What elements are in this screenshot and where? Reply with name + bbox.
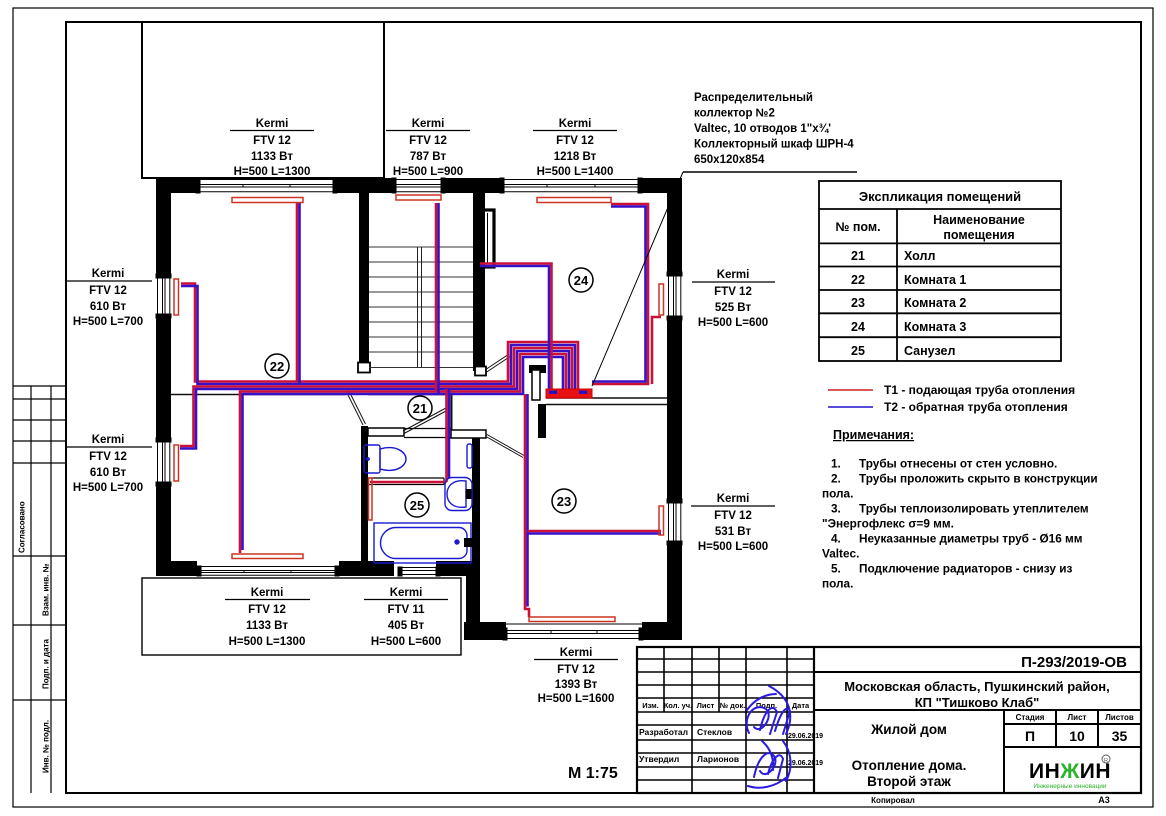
svg-text:610 Вт: 610 Вт	[90, 467, 127, 479]
svg-text:Изм.: Изм.	[642, 701, 659, 710]
svg-text:Санузел: Санузел	[904, 344, 955, 358]
svg-text:FTV 12: FTV 12	[714, 286, 752, 298]
svg-text:Кол. уч.: Кол. уч.	[664, 701, 693, 710]
svg-text:Kermi: Kermi	[256, 118, 289, 130]
svg-text:Примечания:: Примечания:	[833, 428, 914, 442]
svg-text:25: 25	[851, 344, 865, 358]
svg-text:Неуказанные диаметры труб - Ø1: Неуказанные диаметры труб - Ø16 мм	[859, 532, 1082, 546]
svg-text:Комната 3: Комната 3	[904, 320, 966, 334]
svg-text:22: 22	[851, 273, 865, 287]
svg-text:Valtec.: Valtec.	[822, 547, 859, 561]
svg-text:Коллекторный шкаф ШРН-4: Коллекторный шкаф ШРН-4	[694, 139, 854, 151]
svg-text:10: 10	[1069, 728, 1085, 744]
svg-text:Kermi: Kermi	[251, 587, 284, 599]
svg-text:H=500 L=1400: H=500 L=1400	[537, 166, 614, 178]
svg-text:23: 23	[851, 296, 865, 310]
svg-text:ИНЖИН: ИНЖИН	[1029, 760, 1111, 783]
svg-text:4.: 4.	[831, 532, 841, 546]
svg-text:коллектор №2: коллектор №2	[694, 108, 775, 120]
svg-text:2.: 2.	[831, 472, 841, 486]
svg-text:Дата: Дата	[792, 701, 810, 710]
svg-text:Kermi: Kermi	[560, 647, 593, 659]
svg-text:Экспликация помещений: Экспликация помещений	[859, 189, 1021, 204]
svg-text:Kermi: Kermi	[390, 587, 423, 599]
svg-text:24: 24	[851, 320, 865, 334]
svg-text:29.06.2019: 29.06.2019	[788, 733, 823, 740]
svg-text:Kermi: Kermi	[92, 268, 125, 280]
svg-text:29.06.2019: 29.06.2019	[788, 760, 823, 767]
svg-text:Копировал: Копировал	[871, 796, 915, 805]
svg-text:H=500 L=1300: H=500 L=1300	[229, 636, 306, 648]
svg-text:Valtec, 10 отводов 1"х¾': Valtec, 10 отводов 1"х¾'	[694, 123, 831, 135]
svg-text:25: 25	[410, 498, 424, 513]
svg-text:Т2 - обратная труба отопления: Т2 - обратная труба отопления	[884, 400, 1068, 414]
svg-text:FTV 12: FTV 12	[714, 510, 752, 522]
svg-text:Комната 1: Комната 1	[904, 273, 966, 287]
svg-text:М 1:75: М 1:75	[568, 765, 618, 782]
svg-text:Утвердил: Утвердил	[639, 754, 679, 764]
svg-text:Kermi: Kermi	[92, 434, 125, 446]
svg-text:FTV 12: FTV 12	[409, 135, 447, 147]
svg-text:H=500 L=600: H=500 L=600	[698, 541, 768, 553]
svg-text:Взам. инв. №: Взам. инв. №	[42, 563, 51, 616]
svg-text:H=500 L=1600: H=500 L=1600	[538, 693, 615, 705]
svg-text:П-293/2019-ОВ: П-293/2019-ОВ	[1021, 654, 1127, 671]
svg-text:Стадия: Стадия	[1016, 713, 1045, 722]
svg-text:Лист: Лист	[697, 701, 715, 710]
svg-text:Ларионов: Ларионов	[697, 754, 739, 764]
svg-text:"Энергофлекс σ=9 мм.: "Энергофлекс σ=9 мм.	[822, 517, 954, 531]
svg-text:FTV 12: FTV 12	[89, 285, 127, 297]
svg-text:1218 Вт: 1218 Вт	[554, 151, 597, 163]
svg-text:H=500 L=600: H=500 L=600	[371, 636, 441, 648]
svg-text:FTV 11: FTV 11	[387, 604, 425, 616]
svg-text:405 Вт: 405 Вт	[388, 620, 425, 632]
svg-text:А3: А3	[1098, 795, 1110, 805]
svg-text:FTV 12: FTV 12	[556, 135, 594, 147]
svg-text:Трубы отнесены от стен условно: Трубы отнесены от стен условно.	[859, 457, 1057, 471]
svg-text:1133 Вт: 1133 Вт	[251, 151, 293, 163]
svg-text:Отопление дома.: Отопление дома.	[852, 758, 967, 773]
svg-text:FTV 12: FTV 12	[253, 135, 291, 147]
svg-text:Инв. № подл.: Инв. № подл.	[42, 720, 51, 773]
svg-text:Трубы теплоизолировать утеплит: Трубы теплоизолировать утеплителем	[859, 502, 1089, 516]
svg-text:1393 Вт: 1393 Вт	[555, 679, 598, 691]
svg-text:3.: 3.	[831, 502, 841, 516]
svg-text:Подключение радиаторов - снизу: Подключение радиаторов - снизу из	[859, 562, 1072, 576]
svg-text:610 Вт: 610 Вт	[90, 301, 127, 313]
svg-text:1.: 1.	[831, 457, 841, 471]
svg-text:Комната 2: Комната 2	[904, 296, 966, 310]
svg-text:Согласовано: Согласовано	[18, 501, 27, 553]
svg-text:Холл: Холл	[904, 249, 935, 263]
svg-text:R: R	[1104, 758, 1108, 764]
svg-text:FTV 12: FTV 12	[557, 664, 595, 676]
svg-text:Kermi: Kermi	[717, 493, 750, 505]
svg-text:Kermi: Kermi	[412, 118, 445, 130]
svg-text:№ пом.: № пом.	[835, 220, 880, 234]
svg-text:Листов: Листов	[1105, 713, 1134, 722]
svg-text:650х120х854: 650х120х854	[694, 154, 765, 166]
svg-text:пола.: пола.	[822, 487, 853, 501]
svg-text:525 Вт: 525 Вт	[715, 302, 752, 314]
svg-text:H=500 L=900: H=500 L=900	[393, 166, 463, 178]
svg-text:Лист: Лист	[1068, 713, 1087, 722]
svg-text:Трубы проложить скрыто в конст: Трубы проложить скрыто в конструкции	[859, 472, 1098, 486]
svg-text:5.: 5.	[831, 562, 841, 576]
svg-text:Инженерные инновации: Инженерные инновации	[1033, 783, 1107, 790]
svg-text:FTV 12: FTV 12	[89, 451, 127, 463]
svg-text:Стеклов: Стеклов	[697, 727, 732, 737]
svg-text:22: 22	[270, 359, 284, 374]
svg-text:пола.: пола.	[822, 577, 853, 591]
svg-text:№ док.: № док.	[720, 701, 746, 710]
svg-text:H=500 L=700: H=500 L=700	[73, 482, 143, 494]
svg-text:23: 23	[557, 494, 571, 509]
svg-text:Kermi: Kermi	[717, 269, 750, 281]
svg-text:Жилой дом: Жилой дом	[870, 722, 947, 737]
svg-text:Т1 - подающая труба отопления: Т1 - подающая труба отопления	[884, 383, 1075, 397]
svg-text:H=500 L=600: H=500 L=600	[698, 317, 768, 329]
svg-text:FTV 12: FTV 12	[248, 604, 286, 616]
svg-text:Наименование: Наименование	[933, 213, 1025, 227]
svg-text:Второй этаж: Второй этаж	[867, 774, 951, 789]
svg-text:24: 24	[574, 273, 589, 288]
svg-text:21: 21	[851, 249, 865, 263]
svg-text:Разработал: Разработал	[639, 727, 688, 737]
svg-text:П: П	[1025, 728, 1035, 744]
svg-text:21: 21	[413, 401, 427, 416]
svg-text:H=500 L=1300: H=500 L=1300	[234, 166, 311, 178]
svg-text:531 Вт: 531 Вт	[715, 526, 752, 538]
svg-text:Kermi: Kermi	[559, 118, 592, 130]
svg-text:Московская область, Пушкинский: Московская область, Пушкинский район,	[844, 679, 1110, 694]
svg-text:H=500 L=700: H=500 L=700	[73, 316, 143, 328]
svg-text:КП "Тишково Клаб": КП "Тишково Клаб"	[915, 695, 1040, 710]
svg-text:помещения: помещения	[943, 228, 1014, 242]
svg-text:Распределительный: Распределительный	[694, 92, 813, 104]
svg-text:787 Вт: 787 Вт	[410, 151, 447, 163]
svg-text:35: 35	[1112, 728, 1128, 744]
svg-text:Подп. и дата: Подп. и дата	[42, 639, 51, 689]
svg-text:1133 Вт: 1133 Вт	[246, 620, 288, 632]
